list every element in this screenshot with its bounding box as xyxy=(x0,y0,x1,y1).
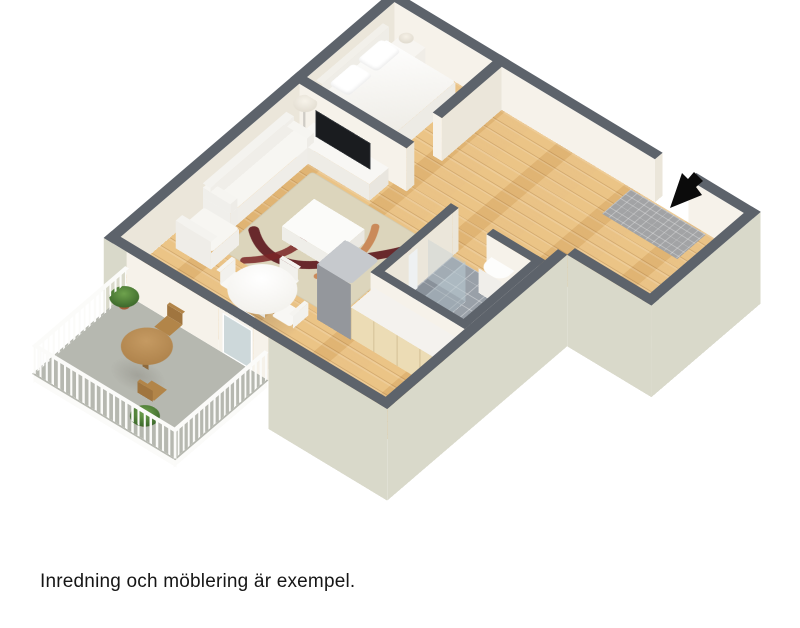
bathroom-door-jamb xyxy=(452,208,458,257)
floor-plan-image: Inredning och möblering är exempel. xyxy=(0,0,800,628)
entrance-arrow-icon xyxy=(666,164,716,214)
entrance-door-jamb xyxy=(655,153,663,203)
floor-plan-3d-scene xyxy=(7,33,760,586)
caption: Inredning och möblering är exempel. xyxy=(40,571,355,593)
wall-face xyxy=(407,142,415,192)
bedroom-door-jamb xyxy=(433,113,442,162)
